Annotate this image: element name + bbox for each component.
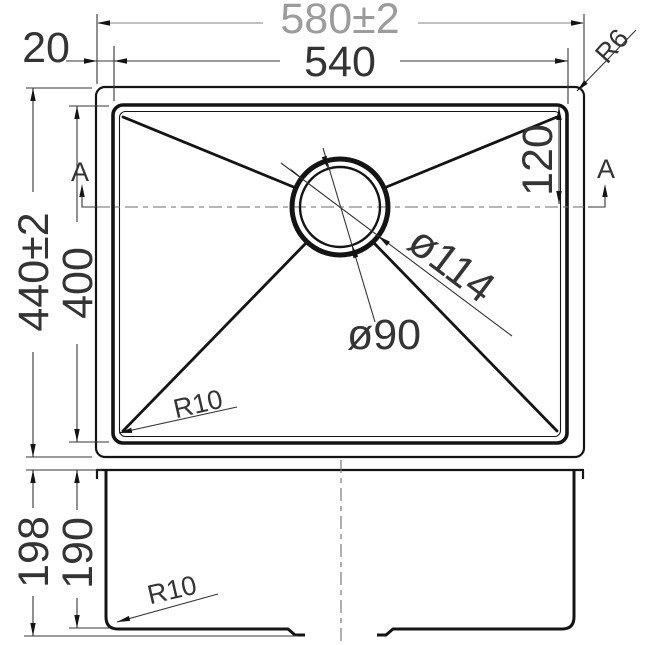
dim-drain-flange-diameter-label: ø114 — [399, 217, 504, 312]
dim-overall-depth-label: 440±2 — [10, 212, 58, 331]
dim-total-depth: 198 — [10, 470, 58, 636]
dim-drain-center-offset-label: 120 — [514, 124, 562, 196]
outer-rim-outline — [96, 87, 584, 457]
section-marker-left: A — [71, 157, 96, 207]
section-marker-right: A — [588, 154, 615, 207]
dim-rim-offset-label: 20 — [22, 24, 70, 72]
bowl-profile-left — [106, 471, 305, 635]
dim-rim-offset: 20 — [22, 24, 114, 72]
section-marker-right-label: A — [597, 154, 615, 184]
dim-drain-center-offset: 120 — [514, 107, 562, 204]
bowl-profile-right — [377, 471, 574, 635]
dim-overall-width-label: 580±2 — [280, 0, 399, 43]
dim-bowl-depth-label: 190 — [54, 517, 102, 589]
callout-opening-corner-radius: R10 — [119, 384, 237, 433]
side-view: 198 190 R10 — [10, 460, 584, 644]
callout-bottom-corner-radius-label: R10 — [144, 570, 199, 610]
dim-opening-width-label: 540 — [304, 38, 376, 86]
dim-opening-width: 540 — [114, 38, 568, 86]
callout-outer-corner-radius: R6 — [577, 23, 636, 91]
dim-total-depth-label: 198 — [10, 516, 58, 588]
section-marker-left-label: A — [71, 157, 89, 187]
drawing-canvas: 580±2 540 20 440±2 — [0, 0, 645, 645]
top-view: 580±2 540 20 440±2 — [10, 0, 636, 457]
dim-overall-depth: 440±2 — [10, 88, 58, 457]
dim-opening-depth-label: 400 — [54, 247, 102, 319]
sink-technical-drawing: 580±2 540 20 440±2 — [0, 0, 645, 645]
dim-drain-hole-diameter-label: ø90 — [347, 311, 421, 359]
callout-bottom-corner-radius: R10 — [117, 570, 218, 622]
dim-bowl-depth: 190 — [54, 470, 102, 628]
callout-opening-corner-radius-label: R10 — [170, 384, 225, 424]
dim-overall-width: 580±2 — [97, 0, 584, 43]
callout-outer-corner-radius-label: R6 — [589, 23, 634, 69]
